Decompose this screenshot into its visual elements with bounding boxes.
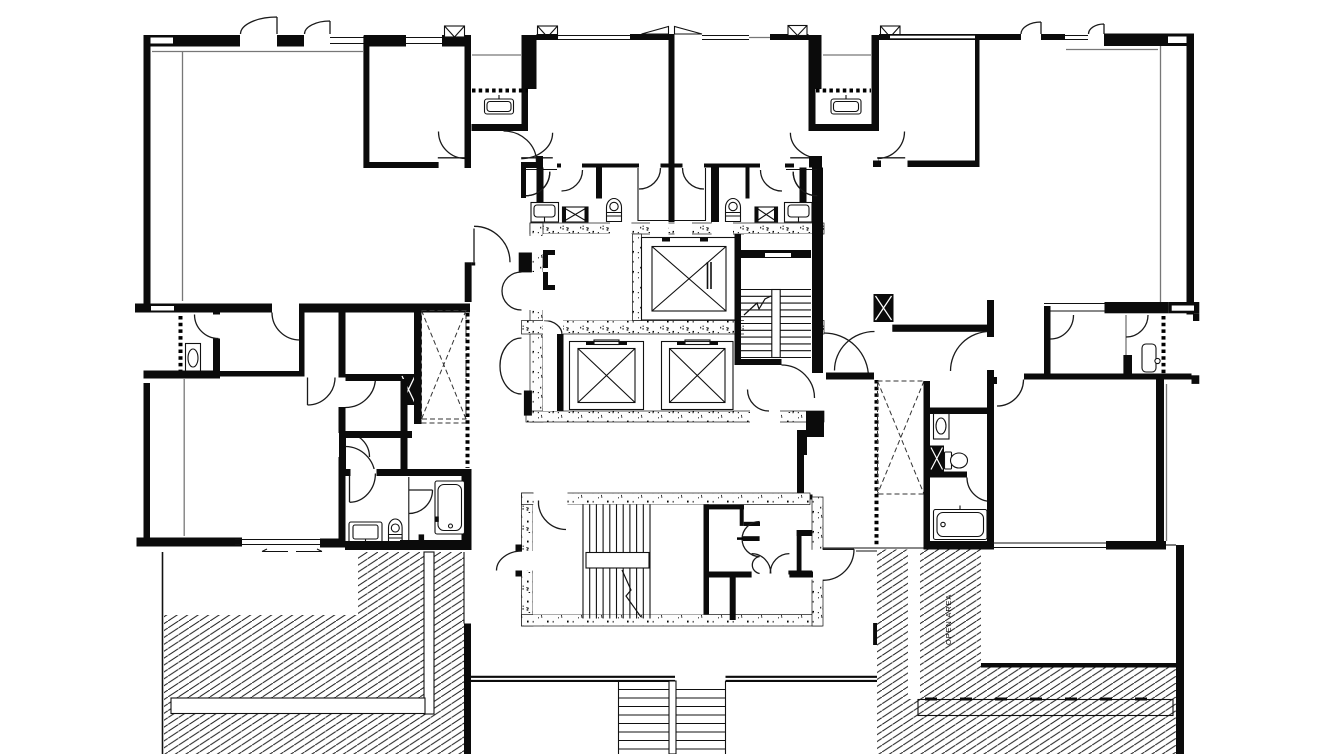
svg-text:OPEN AREA: OPEN AREA xyxy=(944,594,953,645)
